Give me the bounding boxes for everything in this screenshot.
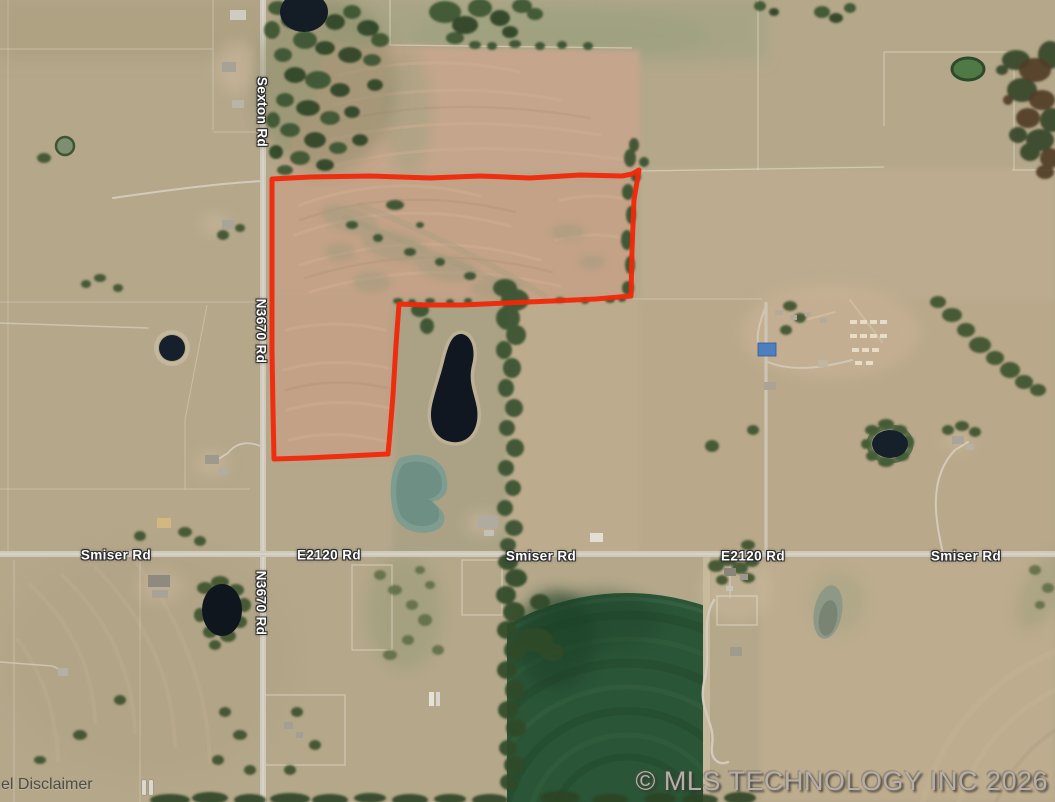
attribution-text: © MLS TECHNOLOGY INC 2026 xyxy=(635,766,1048,797)
satellite-map[interactable]: Sexton RdN3670 RdN3670 RdSmiser RdE2120 … xyxy=(0,0,1055,802)
pond xyxy=(952,58,984,80)
pond xyxy=(872,430,908,458)
slider-handle-icon xyxy=(142,780,155,795)
pond xyxy=(56,137,74,155)
satellite-imagery xyxy=(0,0,1055,802)
disclaimer-text: el Disclaimer xyxy=(1,776,93,794)
pond xyxy=(202,584,242,636)
blue-roof-building xyxy=(758,343,776,356)
pond xyxy=(159,335,185,361)
